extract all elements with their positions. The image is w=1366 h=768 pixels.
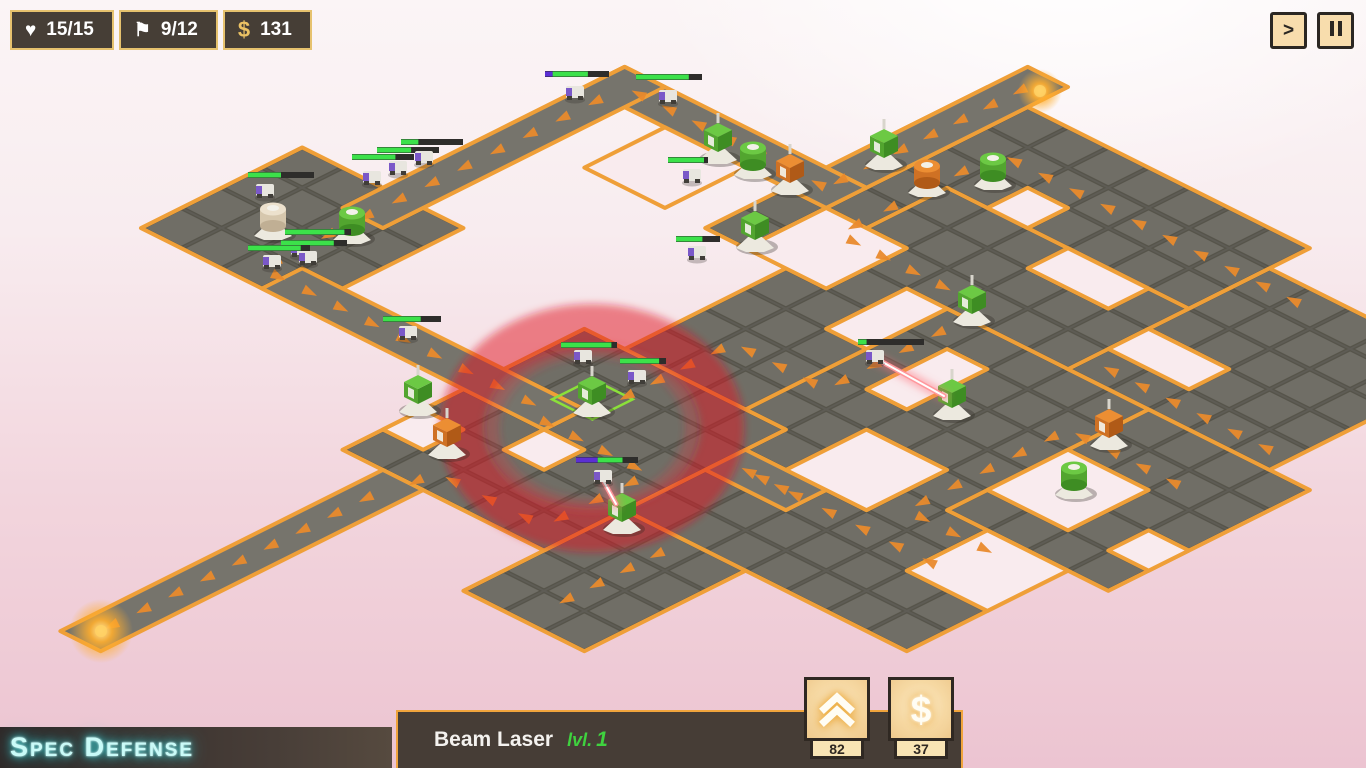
- sell-button-face[interactable]: $: [888, 677, 954, 741]
- health-bar: [383, 317, 421, 322]
- health-bar: [676, 237, 702, 242]
- tower-level-prefix: lvl.: [567, 730, 592, 751]
- shield-bar: [576, 458, 598, 463]
- logo-bar: Spec Defense: [0, 727, 392, 768]
- health-bar: [352, 155, 395, 160]
- heart-icon: ♥: [25, 21, 36, 40]
- selected-tower-panel: Beam Laser lvl. 1: [396, 710, 963, 768]
- fast-forward-icon: >: [1283, 20, 1294, 42]
- tower-name: Beam Laser: [434, 728, 553, 752]
- lives-value: 15/15: [46, 19, 94, 41]
- portal-core: [95, 625, 107, 637]
- health-bar: [248, 246, 301, 251]
- health-bar: [285, 230, 344, 235]
- top-hud: ♥ 15/15 ⚑ 9/12 $ 131: [10, 10, 312, 50]
- tower-level-value: 1: [596, 728, 608, 752]
- tower-level: lvl. 1: [567, 728, 608, 752]
- health-bar: [620, 359, 659, 364]
- money-counter: $ 131: [223, 10, 312, 50]
- sell-price: 37: [894, 738, 948, 759]
- wave-counter: ⚑ 9/12: [119, 10, 218, 50]
- wave-value: 9/12: [161, 19, 198, 41]
- health-bar: [401, 140, 418, 145]
- speed-controls: >: [1270, 12, 1354, 49]
- health-bar: [598, 458, 623, 463]
- dollar-icon: $: [238, 19, 250, 41]
- portal-core: [1034, 85, 1046, 97]
- health-bar: [636, 75, 689, 80]
- health-bar-bg: [858, 339, 924, 345]
- flag-icon: ⚑: [134, 21, 151, 40]
- enemy-unit: [676, 236, 720, 264]
- health-bar: [281, 241, 334, 246]
- shield-bar: [545, 72, 553, 77]
- game-map[interactable]: [0, 0, 1366, 768]
- health-bar: [248, 173, 281, 178]
- upgrade-button[interactable]: 82: [804, 677, 870, 759]
- health-bar: [553, 72, 588, 77]
- pause-icon: [1328, 20, 1344, 42]
- sell-button[interactable]: $ 37: [888, 677, 954, 759]
- health-bar: [377, 148, 411, 153]
- pause-button[interactable]: [1317, 12, 1354, 49]
- fast-forward-button[interactable]: >: [1270, 12, 1307, 49]
- upgrade-button-face[interactable]: [804, 677, 870, 741]
- health-bar: [668, 158, 704, 163]
- upgrade-chevron-icon: [816, 688, 858, 730]
- upgrade-cost: 82: [810, 738, 864, 759]
- money-value: 131: [260, 19, 292, 41]
- sell-dollar-icon: $: [911, 691, 932, 728]
- health-bar: [561, 343, 611, 348]
- health-bar: [858, 340, 867, 345]
- game-logo: Spec Defense: [10, 732, 194, 763]
- lives-counter: ♥ 15/15: [10, 10, 114, 50]
